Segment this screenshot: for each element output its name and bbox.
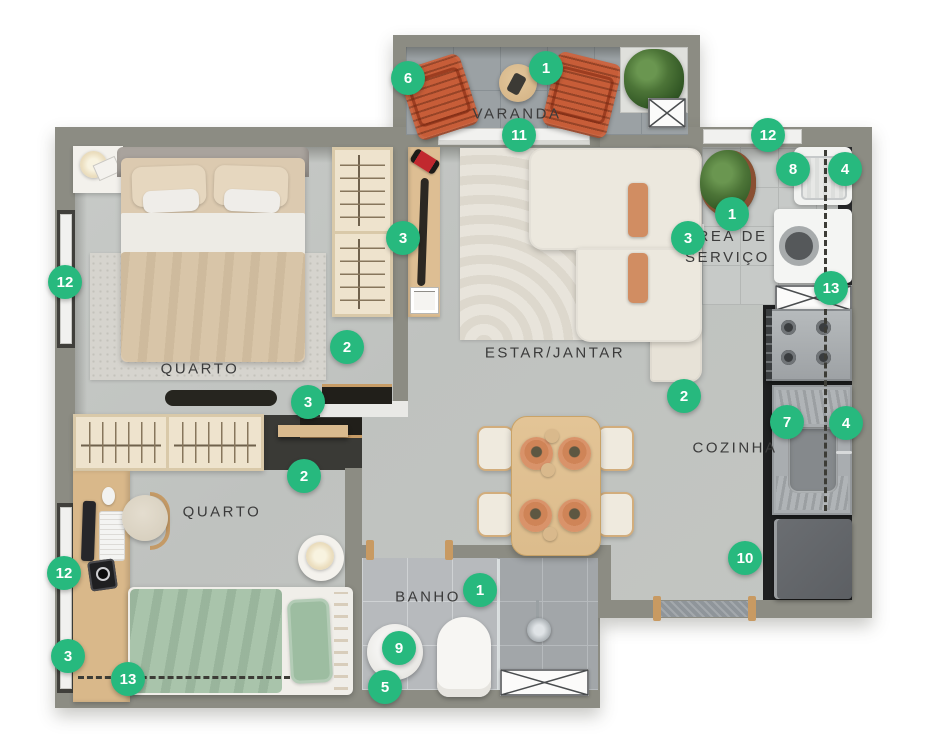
marker-1-varanda: 1 (529, 51, 563, 85)
entrance-jamb-right (748, 596, 756, 621)
marker-12-servico-window: 12 (751, 118, 785, 152)
marker-11-sliding-door: 11 (502, 118, 536, 152)
wall-bottom-right-a (598, 600, 658, 618)
wall-bottom-right-b (750, 600, 872, 618)
banho-door-jamb-left (366, 540, 374, 560)
quarto1-duvet (121, 252, 305, 362)
floor-plan: VARANDA QUARTO ESTAR/JANTAR ÁREA DE SERV… (0, 0, 926, 737)
single-bed-pillow (287, 598, 333, 684)
shower-head (527, 618, 551, 642)
varanda-drain-box (648, 98, 686, 128)
dining-chair (477, 426, 514, 471)
quarto1-door-leaf (322, 384, 392, 404)
stove-burner (781, 320, 796, 335)
marker-10-refrigerator: 10 (728, 541, 762, 575)
mouse (102, 487, 115, 505)
marker-13-servico-cabinet: 13 (814, 271, 848, 305)
dining-chair (477, 492, 514, 537)
banho-door-jamb-right (445, 540, 453, 560)
marker-3-hall-console: 3 (386, 221, 420, 255)
wardrobe-section (335, 150, 390, 231)
picture-frame (410, 287, 439, 314)
sink-faucet (836, 451, 852, 454)
marker-2-quarto1: 2 (330, 330, 364, 364)
marker-9-banho-sink: 9 (382, 631, 416, 665)
wall-shelf (278, 425, 348, 437)
camera-lens (96, 567, 110, 581)
entrance-doormat (660, 601, 748, 617)
single-bed-headboard (334, 592, 348, 690)
bowl (545, 429, 559, 443)
monitor (81, 501, 96, 561)
marker-13-quarto2: 13 (111, 662, 145, 696)
room-label-banho: BANHO (395, 589, 461, 606)
sink-basin (788, 427, 838, 493)
wardrobe-section (76, 417, 166, 468)
stove-burner (781, 350, 796, 365)
marker-5-banho-sink-base: 5 (368, 670, 402, 704)
marker-8-laundry-sink: 8 (776, 152, 810, 186)
marker-12-quarto1-window: 12 (48, 265, 82, 299)
marker-3-servico-door: 3 (671, 221, 705, 255)
marker-12-quarto2-window: 12 (47, 556, 81, 590)
room-label-cozinha: COZINHA (693, 440, 778, 457)
bed-foot-bench (165, 390, 277, 406)
marker-4-cozinha-wall: 4 (829, 406, 863, 440)
sofa-cushion-bottom (628, 253, 648, 303)
marker-4-servico-wall: 4 (828, 152, 862, 186)
entrance-jamb-left (653, 596, 661, 621)
marker-3-quarto2: 3 (51, 639, 85, 673)
marker-2-quarto2: 2 (287, 459, 321, 493)
wardrobe-section (335, 234, 390, 314)
stove-knob-strip (766, 309, 772, 381)
marker-3-quarto1-door: 3 (291, 385, 325, 419)
quarto1-cushion-left (142, 189, 199, 214)
wardrobe-section (169, 417, 261, 468)
dining-chair (597, 492, 634, 537)
quarto1-cushion-right (223, 189, 280, 214)
dining-chair (597, 426, 634, 471)
wall-quarto1-living (393, 147, 408, 405)
quarto1-wardrobe (332, 147, 393, 317)
shower-tray (500, 669, 589, 696)
stove (766, 309, 852, 381)
plate (558, 499, 591, 532)
bowl (543, 527, 557, 541)
marker-1-banho: 1 (463, 573, 497, 607)
refrigerator (774, 519, 852, 599)
quarto2-wardrobe (73, 414, 264, 471)
bedside-lamp (306, 542, 334, 570)
marker-1-servico: 1 (715, 197, 749, 231)
toilet (437, 617, 491, 697)
marker-6-varanda: 6 (391, 61, 425, 95)
desk-chair-seat (122, 495, 168, 541)
bowl (541, 463, 555, 477)
room-label-quarto2: QUARTO (183, 504, 262, 521)
sofa-cushion-top (628, 183, 648, 237)
plate (558, 437, 591, 470)
marker-2-cozinha: 2 (667, 379, 701, 413)
demarcation-line-cozinha (824, 309, 827, 511)
room-label-quarto1: QUARTO (161, 361, 240, 378)
room-label-estar-jantar: ESTAR/JANTAR (485, 345, 625, 362)
demarcation-line-quarto2 (78, 676, 290, 679)
marker-7-kitchen-sink: 7 (770, 405, 804, 439)
